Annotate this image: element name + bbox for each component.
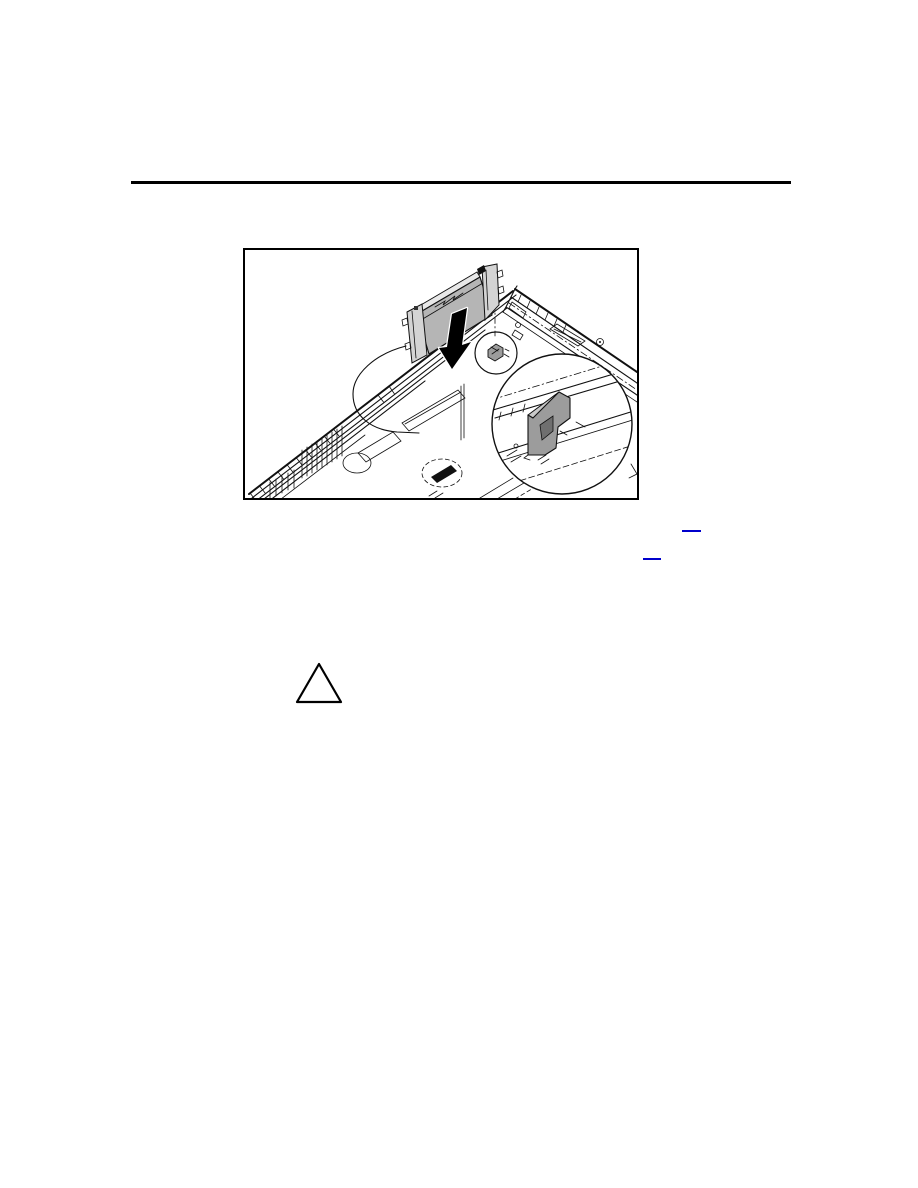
module-bracket-left [402, 304, 427, 363]
page-reference-link-1[interactable] [682, 516, 701, 532]
magnifier-circle [491, 354, 637, 494]
small-highlight-circle [475, 332, 517, 374]
document-page [0, 0, 918, 1188]
header-rule [131, 181, 791, 184]
figure-frame [243, 248, 639, 500]
hardware-installation-illustration [245, 250, 637, 498]
caution-triangle-icon [294, 661, 344, 705]
page-reference-link-2[interactable] [643, 544, 661, 560]
